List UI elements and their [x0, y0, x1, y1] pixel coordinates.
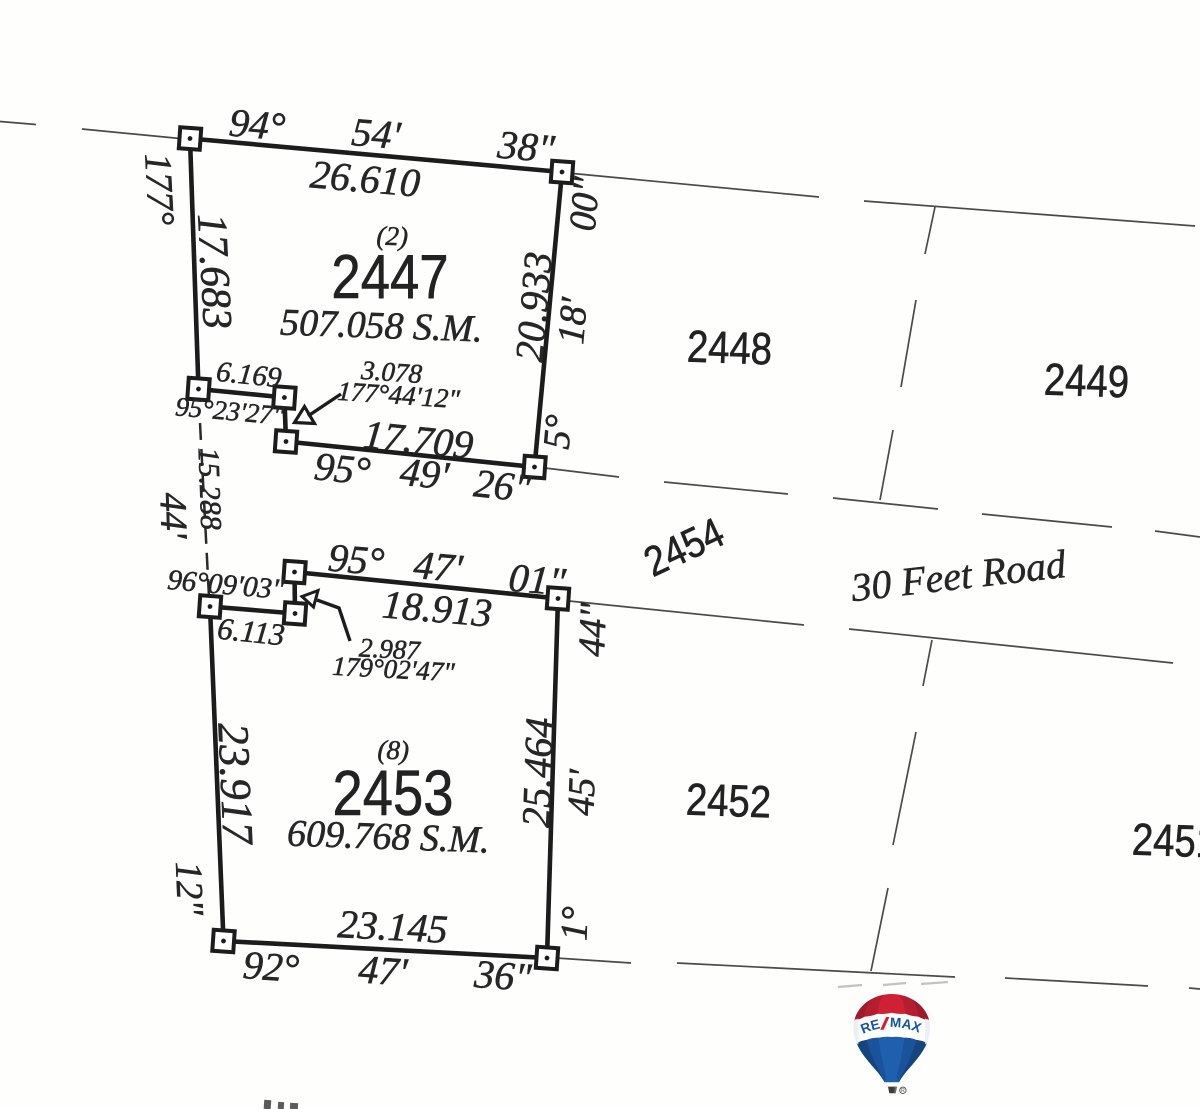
- svg-text:23.145: 23.145: [337, 901, 449, 952]
- svg-text:6.169: 6.169: [215, 356, 284, 395]
- svg-text:2454: 2454: [637, 509, 731, 586]
- svg-text:1°: 1°: [553, 906, 596, 942]
- svg-text:45': 45': [560, 768, 604, 816]
- svg-text:54': 54': [350, 109, 404, 158]
- svg-text:2453: 2453: [333, 757, 454, 829]
- svg-text:44': 44': [151, 492, 195, 540]
- svg-text:23.917: 23.917: [208, 722, 262, 847]
- svg-text:47': 47': [357, 946, 410, 994]
- svg-text:26.610: 26.610: [308, 151, 422, 205]
- svg-text:95°: 95°: [326, 535, 386, 585]
- svg-text:25.464: 25.464: [513, 717, 562, 829]
- svg-text:2447: 2447: [331, 243, 448, 312]
- svg-text:15.288: 15.288: [192, 447, 228, 531]
- svg-text:R: R: [901, 1088, 905, 1094]
- svg-text:177°: 177°: [136, 152, 182, 226]
- svg-text:12": 12": [167, 861, 211, 918]
- svg-text:2452: 2452: [685, 774, 772, 828]
- svg-text:177°44'12": 177°44'12": [337, 376, 462, 415]
- svg-text:36": 36": [472, 951, 533, 1000]
- svg-text:44": 44": [571, 601, 615, 657]
- svg-text:38": 38": [495, 122, 557, 172]
- svg-text:5°: 5°: [536, 413, 581, 451]
- svg-text:96°09'03": 96°09'03": [166, 564, 286, 606]
- svg-text:2448: 2448: [686, 321, 773, 375]
- svg-text:26": 26": [472, 460, 533, 511]
- svg-text:30 Feet Road: 30 Feet Road: [848, 541, 1069, 610]
- svg-text:92°: 92°: [241, 942, 300, 991]
- svg-text:2449: 2449: [1043, 354, 1130, 408]
- svg-text:94°: 94°: [227, 100, 287, 150]
- svg-text:179°02'47": 179°02'47": [332, 651, 456, 687]
- svg-text:18.913: 18.913: [380, 581, 494, 635]
- svg-text:18': 18': [550, 295, 596, 345]
- svg-text:6.113: 6.113: [216, 611, 287, 653]
- svg-text:17.683: 17.683: [188, 212, 240, 330]
- svg-text:01": 01": [507, 555, 568, 605]
- svg-text:49': 49': [398, 449, 452, 499]
- svg-text:2451: 2451: [1131, 814, 1200, 868]
- svg-text:00": 00": [562, 174, 609, 232]
- svg-text:95°: 95°: [312, 443, 372, 494]
